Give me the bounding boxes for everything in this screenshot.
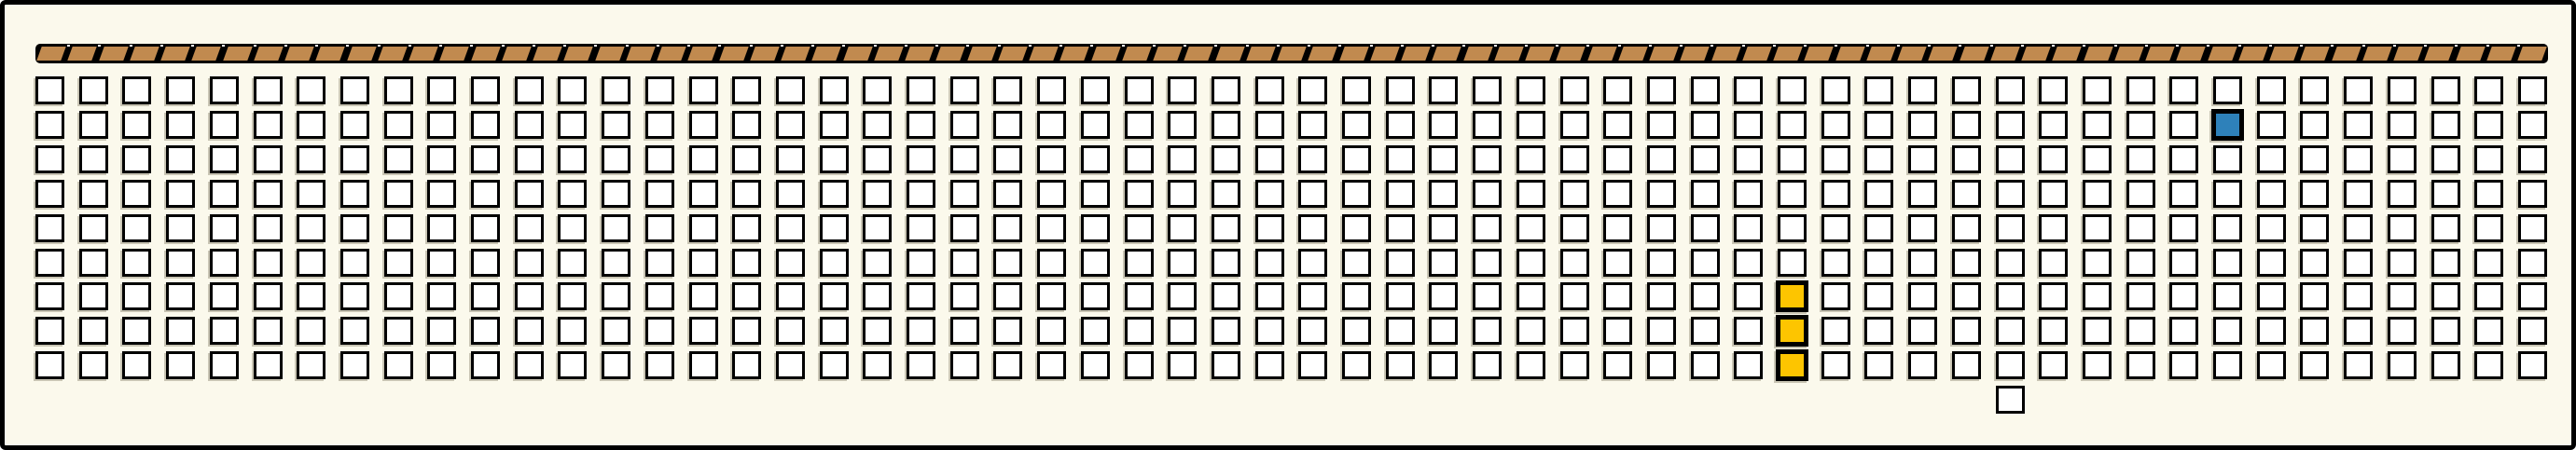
grid-cell[interactable] <box>1691 180 1720 208</box>
grid-cell[interactable] <box>1212 351 1240 379</box>
grid-cell[interactable] <box>950 145 979 173</box>
grid-cell[interactable] <box>1429 145 1458 173</box>
grid-cell[interactable] <box>2388 317 2417 345</box>
grid-cell[interactable] <box>2300 214 2329 242</box>
grid-cell[interactable] <box>1081 145 1110 173</box>
grid-cell[interactable] <box>689 145 718 173</box>
grid-cell[interactable] <box>1255 282 1284 310</box>
grid-cell[interactable] <box>297 111 325 139</box>
grid-cell[interactable] <box>993 214 1022 242</box>
grid-cell[interactable] <box>2431 111 2460 139</box>
grid-cell[interactable] <box>2083 282 2112 310</box>
grid-cell[interactable] <box>1603 180 1632 208</box>
grid-cell[interactable] <box>1168 76 1197 104</box>
grid-cell[interactable] <box>2169 249 2198 277</box>
grid-cell[interactable] <box>2518 111 2547 139</box>
grid-cell[interactable] <box>993 180 1022 208</box>
grid-cell[interactable] <box>820 145 849 173</box>
grid-cell[interactable] <box>1298 111 1327 139</box>
grid-cell[interactable] <box>1821 111 1850 139</box>
grid-cell[interactable] <box>210 214 239 242</box>
grid-cell[interactable] <box>2213 317 2242 345</box>
grid-cell[interactable] <box>645 214 674 242</box>
grid-cell[interactable] <box>2126 214 2155 242</box>
grid-cell[interactable] <box>2083 76 2112 104</box>
grid-cell[interactable] <box>863 249 892 277</box>
grid-cell[interactable] <box>1037 317 1066 345</box>
grid-cell[interactable] <box>2126 180 2155 208</box>
grid-cell[interactable] <box>297 249 325 277</box>
grid-cell[interactable] <box>2344 282 2373 310</box>
grid-cell[interactable] <box>558 180 587 208</box>
grid-cell[interactable] <box>2300 351 2329 379</box>
grid-cell[interactable] <box>732 214 761 242</box>
grid-cell[interactable] <box>1429 180 1458 208</box>
grid-cell[interactable] <box>2257 145 2286 173</box>
grid-cell[interactable] <box>1821 76 1850 104</box>
grid-cell[interactable] <box>1734 282 1763 310</box>
grid-cell[interactable] <box>863 282 892 310</box>
grid-cell[interactable] <box>166 249 195 277</box>
grid-cell[interactable] <box>1517 214 1545 242</box>
grid-cell[interactable] <box>1255 76 1284 104</box>
grid-cell[interactable] <box>35 111 64 139</box>
grid-cell[interactable] <box>907 351 935 379</box>
grid-cell[interactable] <box>384 214 413 242</box>
grid-cell[interactable] <box>384 317 413 345</box>
grid-cell[interactable] <box>820 317 849 345</box>
grid-cell[interactable] <box>1864 76 1893 104</box>
grid-cell[interactable] <box>2083 180 2112 208</box>
grid-cell[interactable] <box>1734 180 1763 208</box>
grid-cell[interactable] <box>1996 76 2025 104</box>
grid-cell[interactable] <box>1603 282 1632 310</box>
grid-cell[interactable] <box>776 214 805 242</box>
grid-cell[interactable] <box>776 111 805 139</box>
grid-cell[interactable] <box>1778 76 1807 104</box>
grid-cell[interactable] <box>1386 76 1415 104</box>
grid-cell[interactable] <box>1560 111 1589 139</box>
grid-cell[interactable] <box>210 180 239 208</box>
grid-cell[interactable] <box>689 180 718 208</box>
grid-cell[interactable] <box>2474 351 2503 379</box>
grid-cell[interactable] <box>340 180 369 208</box>
grid-cell[interactable] <box>515 282 544 310</box>
grid-cell[interactable] <box>602 282 630 310</box>
grid-cell[interactable] <box>2431 76 2460 104</box>
grid-cell[interactable] <box>1952 145 1981 173</box>
grid-cell[interactable] <box>1386 249 1415 277</box>
grid-cell[interactable] <box>1560 145 1589 173</box>
grid-cell[interactable] <box>2388 76 2417 104</box>
grid-cell[interactable] <box>1298 76 1327 104</box>
grid-cell[interactable] <box>515 214 544 242</box>
grid-cell[interactable] <box>1864 317 1893 345</box>
grid-cell[interactable] <box>950 76 979 104</box>
grid-cell[interactable] <box>2126 282 2155 310</box>
grid-cell[interactable] <box>1647 111 1676 139</box>
grid-cell[interactable] <box>2518 249 2547 277</box>
grid-cell[interactable] <box>166 76 195 104</box>
grid-cell[interactable] <box>1952 111 1981 139</box>
grid-cell[interactable] <box>2344 145 2373 173</box>
grid-cell[interactable] <box>1429 351 1458 379</box>
grid-cell[interactable] <box>907 317 935 345</box>
grid-cell[interactable] <box>1342 351 1371 379</box>
grid-cell[interactable] <box>1517 317 1545 345</box>
grid-cell[interactable] <box>2518 282 2547 310</box>
grid-cell[interactable] <box>1081 111 1110 139</box>
grid-cell[interactable] <box>2474 180 2503 208</box>
grid-cell[interactable] <box>2169 282 2198 310</box>
grid-cell[interactable] <box>471 145 500 173</box>
grid-cell[interactable] <box>732 351 761 379</box>
grid-cell[interactable] <box>1603 351 1632 379</box>
grid-cell[interactable] <box>297 282 325 310</box>
grid-cell[interactable] <box>1298 351 1327 379</box>
grid-cell[interactable] <box>1603 249 1632 277</box>
grid-cell[interactable] <box>122 76 151 104</box>
grid-cell[interactable] <box>907 76 935 104</box>
grid-cell[interactable] <box>1864 249 1893 277</box>
grid-cell[interactable] <box>1212 145 1240 173</box>
grid-cell[interactable] <box>166 317 195 345</box>
grid-cell[interactable] <box>1429 282 1458 310</box>
grid-cell[interactable] <box>79 145 108 173</box>
grid-cell[interactable] <box>863 317 892 345</box>
grid-cell[interactable] <box>1778 145 1807 173</box>
grid-cell[interactable] <box>1821 282 1850 310</box>
grid-cell[interactable] <box>1473 351 1502 379</box>
grid-cell[interactable] <box>515 111 544 139</box>
grid-cell[interactable] <box>2388 351 2417 379</box>
grid-cell[interactable] <box>1778 214 1807 242</box>
grid-cell[interactable] <box>515 249 544 277</box>
grid-cell[interactable] <box>1037 214 1066 242</box>
grid-cell[interactable] <box>79 282 108 310</box>
grid-cell[interactable] <box>602 145 630 173</box>
grid-cell[interactable] <box>166 111 195 139</box>
grid-cell[interactable] <box>1821 317 1850 345</box>
grid-cell[interactable] <box>1255 214 1284 242</box>
grid-cell[interactable] <box>1603 145 1632 173</box>
grid-cell[interactable] <box>79 317 108 345</box>
grid-cell[interactable] <box>1647 282 1676 310</box>
grid-cell[interactable] <box>1778 180 1807 208</box>
grid-cell[interactable] <box>1560 351 1589 379</box>
grid-cell[interactable] <box>1517 282 1545 310</box>
grid-cell[interactable] <box>2518 317 2547 345</box>
grid-cell[interactable] <box>384 111 413 139</box>
grid-cell[interactable] <box>35 76 64 104</box>
grid-cell[interactable] <box>297 145 325 173</box>
grid-cell[interactable] <box>2083 111 2112 139</box>
grid-cell[interactable] <box>2474 145 2503 173</box>
grid-cell[interactable] <box>602 180 630 208</box>
grid-cell[interactable] <box>2213 351 2242 379</box>
grid-cell[interactable] <box>1386 214 1415 242</box>
grid-cell[interactable] <box>254 180 283 208</box>
grid-cell[interactable] <box>1517 76 1545 104</box>
grid-cell[interactable] <box>820 282 849 310</box>
grid-cell[interactable] <box>950 351 979 379</box>
grid-cell[interactable] <box>732 111 761 139</box>
grid-cell[interactable] <box>1647 317 1676 345</box>
grid-cell[interactable] <box>1125 214 1154 242</box>
grid-cell[interactable] <box>427 180 456 208</box>
grid-cell[interactable] <box>863 111 892 139</box>
grid-cell[interactable] <box>732 282 761 310</box>
grid-cell[interactable] <box>340 111 369 139</box>
grid-cell[interactable] <box>340 249 369 277</box>
grid-cell[interactable] <box>1342 282 1371 310</box>
grid-cell[interactable] <box>645 145 674 173</box>
grid-cell[interactable] <box>2344 180 2373 208</box>
grid-cell[interactable] <box>1473 214 1502 242</box>
grid-cell[interactable] <box>2083 351 2112 379</box>
grid-cell[interactable] <box>732 249 761 277</box>
grid-cell[interactable] <box>820 214 849 242</box>
grid-cell[interactable] <box>166 351 195 379</box>
grid-cell[interactable] <box>776 351 805 379</box>
grid-cell[interactable] <box>2213 76 2242 104</box>
grid-cell[interactable] <box>1255 249 1284 277</box>
grid-cell[interactable] <box>1212 317 1240 345</box>
grid-cell[interactable] <box>1386 282 1415 310</box>
grid-cell[interactable] <box>950 249 979 277</box>
grid-cell[interactable] <box>1864 145 1893 173</box>
grid-cell[interactable] <box>2169 145 2198 173</box>
grid-cell[interactable] <box>1212 249 1240 277</box>
grid-cell[interactable] <box>820 351 849 379</box>
grid-cell[interactable] <box>35 145 64 173</box>
grid-cell[interactable] <box>79 111 108 139</box>
grid-cell[interactable] <box>1429 317 1458 345</box>
grid-cell[interactable] <box>1386 351 1415 379</box>
grid-cell[interactable] <box>1212 214 1240 242</box>
grid-cell[interactable] <box>471 76 500 104</box>
grid-cell[interactable] <box>950 180 979 208</box>
grid-cell[interactable] <box>2213 249 2242 277</box>
grid-cell[interactable] <box>1125 111 1154 139</box>
grid-cell[interactable] <box>427 76 456 104</box>
grid-cell[interactable] <box>1255 145 1284 173</box>
grid-cell[interactable] <box>1952 180 1981 208</box>
grid-cell[interactable] <box>820 249 849 277</box>
grid-cell[interactable] <box>254 214 283 242</box>
grid-cell[interactable] <box>1473 145 1502 173</box>
grid-cell[interactable] <box>1996 282 2025 310</box>
grid-cell[interactable] <box>645 249 674 277</box>
grid-cell[interactable] <box>907 282 935 310</box>
grid-cell[interactable] <box>1037 145 1066 173</box>
grid-cell[interactable] <box>1342 249 1371 277</box>
grid-cell[interactable] <box>210 111 239 139</box>
grid-cell[interactable] <box>384 351 413 379</box>
grid-cell[interactable] <box>950 282 979 310</box>
grid-cell[interactable] <box>1298 282 1327 310</box>
grid-cell[interactable] <box>776 76 805 104</box>
grid-cell[interactable] <box>1473 76 1502 104</box>
grid-cell[interactable] <box>907 249 935 277</box>
grid-cell[interactable] <box>79 351 108 379</box>
grid-cell[interactable] <box>2300 180 2329 208</box>
grid-cell[interactable] <box>1560 214 1589 242</box>
grid-cell[interactable] <box>1342 145 1371 173</box>
grid-cell[interactable] <box>645 180 674 208</box>
grid-cell[interactable] <box>1691 317 1720 345</box>
grid-cell[interactable] <box>1125 145 1154 173</box>
grid-cell[interactable] <box>993 76 1022 104</box>
grid-cell[interactable] <box>2257 111 2286 139</box>
grid-cell[interactable] <box>2039 351 2068 379</box>
grid-cell[interactable] <box>1952 214 1981 242</box>
grid-cell[interactable] <box>2300 317 2329 345</box>
grid-cell[interactable] <box>1255 351 1284 379</box>
grid-cell[interactable] <box>558 214 587 242</box>
grid-cell[interactable] <box>79 76 108 104</box>
grid-cell[interactable] <box>254 249 283 277</box>
grid-cell[interactable] <box>863 145 892 173</box>
grid-cell[interactable] <box>1517 145 1545 173</box>
grid-cell[interactable] <box>2388 249 2417 277</box>
grid-cell[interactable] <box>1342 111 1371 139</box>
grid-cell[interactable] <box>427 214 456 242</box>
grid-cell[interactable] <box>2083 317 2112 345</box>
grid-cell[interactable] <box>2126 145 2155 173</box>
grid-cell[interactable] <box>689 76 718 104</box>
grid-cell[interactable] <box>1037 351 1066 379</box>
grid-cell[interactable] <box>297 76 325 104</box>
grid-cell[interactable] <box>558 145 587 173</box>
grid-cell[interactable] <box>1386 145 1415 173</box>
grid-cell[interactable] <box>2388 180 2417 208</box>
grid-cell[interactable] <box>2257 76 2286 104</box>
grid-cell[interactable] <box>1734 214 1763 242</box>
grid-cell[interactable] <box>122 351 151 379</box>
grid-cell[interactable] <box>863 76 892 104</box>
grid-cell[interactable] <box>79 180 108 208</box>
grid-cell[interactable] <box>863 351 892 379</box>
grid-cell[interactable] <box>1081 180 1110 208</box>
grid-cell[interactable] <box>1952 76 1981 104</box>
grid-cell[interactable] <box>689 111 718 139</box>
grid-cell[interactable] <box>732 145 761 173</box>
grid-cell[interactable] <box>427 282 456 310</box>
grid-cell[interactable] <box>1691 76 1720 104</box>
grid-cell[interactable] <box>2257 214 2286 242</box>
grid-cell[interactable] <box>1908 214 1937 242</box>
grid-cell[interactable] <box>645 282 674 310</box>
grid-cell[interactable] <box>645 76 674 104</box>
grid-cell[interactable] <box>2431 282 2460 310</box>
grid-cell[interactable] <box>2300 282 2329 310</box>
grid-cell[interactable] <box>2257 282 2286 310</box>
grid-cell[interactable] <box>1647 249 1676 277</box>
grid-cell[interactable] <box>950 317 979 345</box>
grid-cell[interactable] <box>1603 76 1632 104</box>
grid-cell[interactable] <box>1996 351 2025 379</box>
grid-cell[interactable] <box>602 351 630 379</box>
grid-cell[interactable] <box>515 76 544 104</box>
grid-cell[interactable] <box>1473 249 1502 277</box>
grid-cell[interactable] <box>2126 351 2155 379</box>
grid-cell[interactable] <box>1473 317 1502 345</box>
grid-cell[interactable] <box>2257 249 2286 277</box>
grid-cell[interactable] <box>1298 317 1327 345</box>
grid-cell[interactable] <box>1125 351 1154 379</box>
grid-cell[interactable] <box>1429 76 1458 104</box>
grid-cell[interactable] <box>1734 351 1763 379</box>
grid-cell[interactable] <box>471 180 500 208</box>
grid-cell[interactable] <box>558 282 587 310</box>
grid-cell[interactable] <box>1647 214 1676 242</box>
grid-cell[interactable] <box>35 180 64 208</box>
grid-cell[interactable] <box>776 145 805 173</box>
grid-cell[interactable] <box>776 180 805 208</box>
grid-cell[interactable] <box>1560 76 1589 104</box>
grid-cell[interactable] <box>1037 180 1066 208</box>
grid-cell[interactable] <box>1517 351 1545 379</box>
grid-cell[interactable] <box>340 214 369 242</box>
grid-cell[interactable] <box>1342 214 1371 242</box>
grid-cell[interactable] <box>122 111 151 139</box>
grid-cell[interactable] <box>1821 214 1850 242</box>
grid-cell[interactable] <box>254 351 283 379</box>
grid-cell[interactable] <box>1821 249 1850 277</box>
grid-cell[interactable] <box>1386 111 1415 139</box>
grid-cell[interactable] <box>2257 351 2286 379</box>
grid-cell[interactable] <box>1081 282 1110 310</box>
grid-cell[interactable] <box>1298 249 1327 277</box>
grid-cell[interactable] <box>1778 111 1807 139</box>
grid-cell[interactable] <box>645 111 674 139</box>
grid-cell[interactable] <box>2431 351 2460 379</box>
grid-cell[interactable] <box>1429 214 1458 242</box>
grid-cell[interactable] <box>2518 145 2547 173</box>
grid-cell[interactable] <box>35 249 64 277</box>
grid-cell[interactable] <box>2388 282 2417 310</box>
grid-cell[interactable] <box>340 282 369 310</box>
grid-cell[interactable] <box>776 282 805 310</box>
grid-cell[interactable] <box>1821 180 1850 208</box>
grid-cell[interactable] <box>558 111 587 139</box>
grid-cell[interactable] <box>35 351 64 379</box>
grid-cell[interactable] <box>1168 111 1197 139</box>
grid-cell[interactable] <box>1125 249 1154 277</box>
grid-cell[interactable] <box>993 317 1022 345</box>
grid-cell[interactable] <box>1647 76 1676 104</box>
grid-cell[interactable] <box>471 111 500 139</box>
grid-cell[interactable] <box>2169 351 2198 379</box>
grid-cell[interactable] <box>2518 180 2547 208</box>
grid-cell[interactable] <box>2518 76 2547 104</box>
detached-cell[interactable] <box>1996 386 2025 414</box>
grid-cell[interactable] <box>297 180 325 208</box>
grid-cell[interactable] <box>1473 111 1502 139</box>
grid-cell[interactable] <box>297 214 325 242</box>
grid-cell[interactable] <box>2126 249 2155 277</box>
grid-cell[interactable] <box>1691 214 1720 242</box>
grid-cell[interactable] <box>254 145 283 173</box>
grid-cell[interactable] <box>1603 317 1632 345</box>
grid-cell[interactable] <box>2213 145 2242 173</box>
yellow-highlight-cell[interactable] <box>1776 349 1808 381</box>
grid-cell[interactable] <box>1429 249 1458 277</box>
grid-cell[interactable] <box>2126 317 2155 345</box>
grid-cell[interactable] <box>2388 111 2417 139</box>
grid-cell[interactable] <box>1168 249 1197 277</box>
